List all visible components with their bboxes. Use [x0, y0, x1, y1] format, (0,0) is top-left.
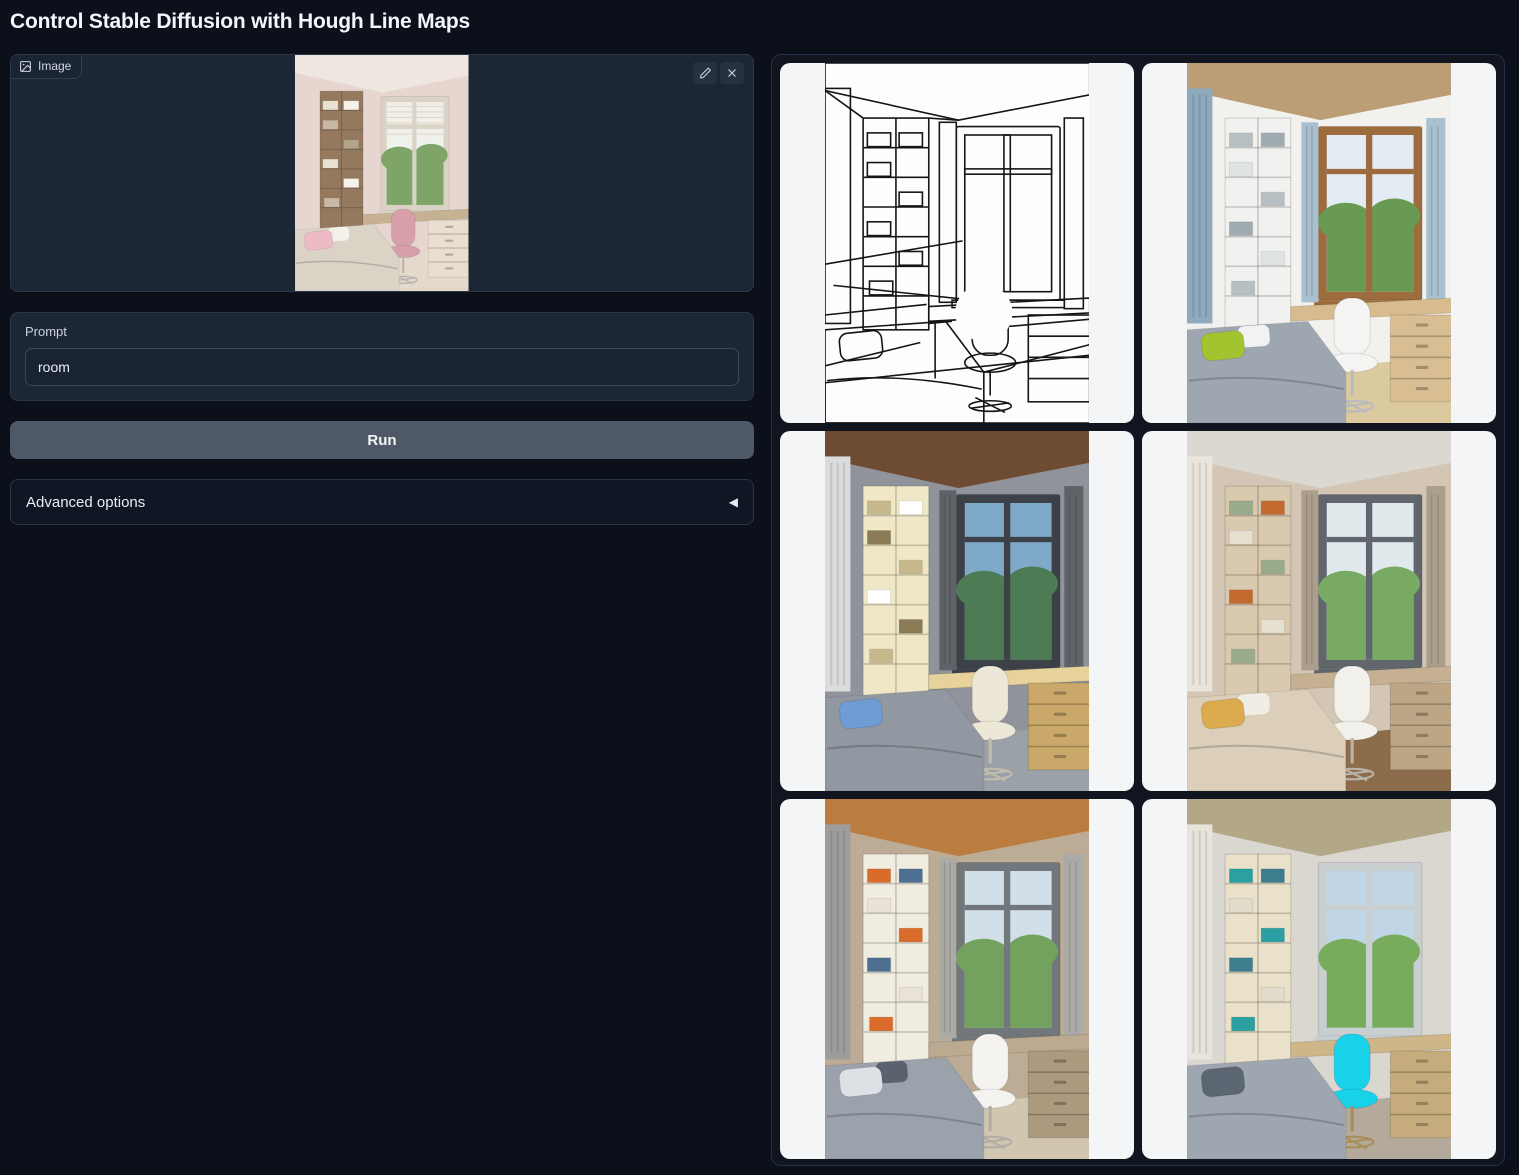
prompt-block: Prompt — [10, 312, 754, 401]
image-icon — [19, 60, 32, 73]
image-upload-panel[interactable]: Image — [10, 54, 754, 292]
advanced-options-label: Advanced options — [26, 494, 145, 511]
gallery-image-2 — [1187, 63, 1452, 423]
image-component-badge: Image — [11, 55, 82, 79]
main-layout: Image Prompt — [10, 54, 1505, 1166]
uploaded-image-preview — [295, 55, 469, 291]
gallery-image-4 — [1187, 431, 1452, 791]
gallery-image-6 — [1187, 799, 1452, 1159]
edit-image-button[interactable] — [693, 62, 717, 84]
left-column: Image Prompt — [10, 54, 754, 525]
gallery-item-6[interactable] — [1142, 799, 1496, 1159]
gallery-item-1[interactable] — [780, 63, 1134, 423]
pencil-icon — [699, 62, 712, 84]
page-title: Control Stable Diffusion with Hough Line… — [10, 10, 1505, 34]
image-toolbar — [693, 62, 744, 84]
advanced-options-accordion[interactable]: Advanced options ◀ — [10, 479, 754, 525]
gallery-image-3 — [825, 431, 1090, 791]
run-button[interactable]: Run — [10, 421, 754, 459]
gallery-image-1 — [825, 63, 1090, 423]
app-page: Control Stable Diffusion with Hough Line… — [0, 0, 1519, 1166]
output-gallery — [771, 54, 1505, 1166]
gallery-item-2[interactable] — [1142, 63, 1496, 423]
accordion-collapse-icon: ◀ — [729, 495, 738, 509]
gallery-item-4[interactable] — [1142, 431, 1496, 791]
gallery-item-5[interactable] — [780, 799, 1134, 1159]
image-component-label: Image — [38, 59, 71, 73]
prompt-input[interactable] — [25, 348, 739, 386]
close-icon — [726, 62, 738, 84]
gallery-image-5 — [825, 799, 1090, 1159]
clear-image-button[interactable] — [720, 62, 744, 84]
prompt-label: Prompt — [25, 324, 739, 339]
gallery-item-3[interactable] — [780, 431, 1134, 791]
